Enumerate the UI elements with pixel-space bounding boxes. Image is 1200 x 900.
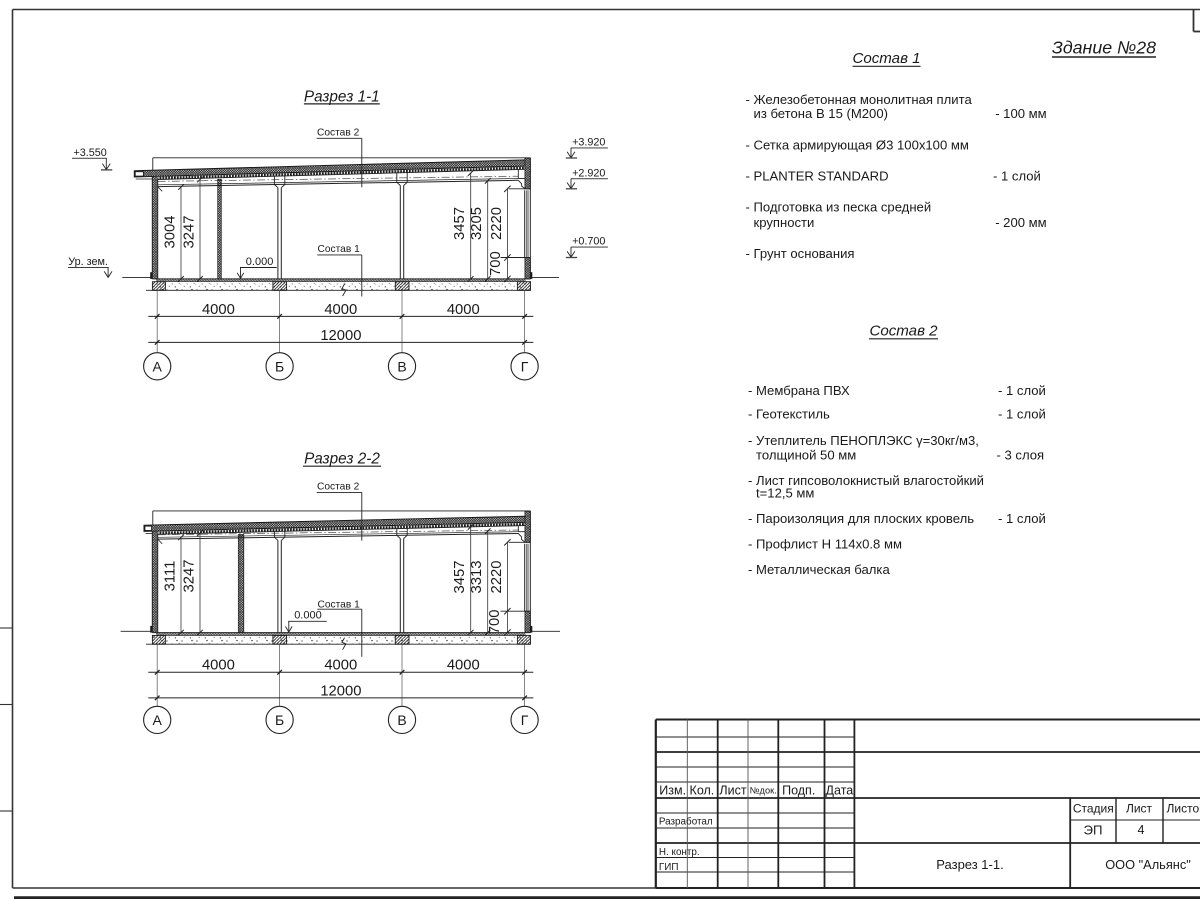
svg-text:+0.700: +0.700 (572, 236, 605, 248)
svg-text:- 1 слой: - 1 слой (998, 383, 1046, 398)
svg-text:- Профлист Н 114х0.8 мм: - Профлист Н 114х0.8 мм (748, 537, 902, 552)
svg-text:крупности: крупности (754, 215, 815, 230)
svg-text:+3.920: +3.920 (572, 137, 605, 149)
svg-text:Листов: Листов (1167, 802, 1200, 816)
svg-text:12000: 12000 (320, 328, 361, 344)
svg-text:Н. контр.: Н. контр. (659, 847, 700, 858)
svg-text:0.000: 0.000 (294, 610, 322, 622)
svg-text:Состав 1: Состав 1 (852, 50, 920, 67)
svg-text:- Сетка армирующая Ø3 100х100: - Сетка армирующая Ø3 100х100 мм (746, 137, 969, 152)
svg-text:- 1 слой: - 1 слой (993, 169, 1041, 184)
svg-text:А: А (153, 358, 163, 374)
svg-text:Изм.: Изм. (659, 783, 686, 797)
svg-text:ООО "Альянс": ООО "Альянс" (1105, 857, 1191, 872)
svg-text:- Геотекстиль: - Геотекстиль (748, 407, 830, 422)
svg-text:2220: 2220 (489, 207, 505, 240)
svg-text:3457: 3457 (452, 207, 468, 240)
svg-text:ЭП: ЭП (1084, 823, 1103, 838)
svg-text:3457: 3457 (452, 561, 468, 594)
svg-text:ГИП: ГИП (659, 862, 679, 873)
svg-text:- 200 мм: - 200 мм (995, 215, 1046, 230)
svg-text:толщиной 50 мм: толщиной 50 мм (756, 447, 856, 462)
svg-text:Состав 2: Состав 2 (317, 481, 360, 492)
svg-text:В: В (397, 358, 406, 374)
svg-text:Разрез 2-2: Разрез 2-2 (304, 451, 380, 468)
svg-text:- Пароизоляция для плоских кро: - Пароизоляция для плоских кровель (748, 511, 974, 526)
svg-text:3004: 3004 (162, 216, 178, 249)
svg-text:700: 700 (488, 251, 504, 276)
svg-text:Разрез 1-1: Разрез 1-1 (304, 88, 380, 105)
svg-text:4: 4 (1138, 823, 1145, 837)
svg-text:Состав 2: Состав 2 (317, 127, 360, 138)
svg-text:Кол.: Кол. (690, 783, 715, 797)
svg-text:+2.920: +2.920 (572, 167, 605, 179)
svg-text:2220: 2220 (489, 561, 505, 594)
svg-text:4000: 4000 (202, 302, 235, 318)
svg-text:t=12,5 мм: t=12,5 мм (756, 486, 814, 501)
svg-text:4000: 4000 (447, 658, 480, 674)
svg-text:№док.: №док. (750, 786, 777, 796)
svg-text:Б: Б (275, 358, 284, 374)
svg-text:3247: 3247 (181, 560, 197, 593)
svg-text:- Металлическая балка: - Металлическая балка (748, 562, 890, 577)
svg-text:Здание №28: Здание №28 (1052, 38, 1156, 58)
svg-text:- Подготовка из песка средней: - Подготовка из песка средней (746, 199, 932, 214)
svg-text:Ур. зем.: Ур. зем. (68, 256, 108, 268)
svg-text:4000: 4000 (447, 302, 480, 318)
svg-text:- Мембрана ПВХ: - Мембрана ПВХ (748, 383, 850, 398)
svg-text:- Утеплитель ПЕНОПЛЭКС γ=30кг/: - Утеплитель ПЕНОПЛЭКС γ=30кг/м3, (748, 433, 979, 448)
svg-text:- Грунт основания: - Грунт основания (746, 246, 855, 261)
svg-text:- 1 слой: - 1 слой (998, 407, 1046, 422)
svg-text:4000: 4000 (324, 302, 357, 318)
svg-text:3313: 3313 (469, 561, 485, 594)
svg-text:- 100 мм: - 100 мм (995, 106, 1046, 121)
svg-text:Г: Г (521, 712, 529, 728)
svg-text:Лист: Лист (719, 783, 746, 797)
svg-text:из бетона В 15 (М200): из бетона В 15 (М200) (754, 106, 889, 121)
svg-text:Разработал: Разработал (659, 817, 713, 828)
svg-text:3247: 3247 (181, 216, 197, 249)
svg-text:- PLANTER STANDARD: - PLANTER STANDARD (746, 169, 889, 184)
svg-text:Состав 2: Состав 2 (869, 323, 938, 340)
svg-text:0.000: 0.000 (246, 256, 274, 268)
svg-text:4000: 4000 (202, 658, 235, 674)
svg-text:700: 700 (487, 610, 503, 635)
svg-text:Подп.: Подп. (782, 783, 815, 797)
svg-text:Г: Г (521, 358, 529, 374)
svg-text:Стадия: Стадия (1073, 802, 1114, 816)
svg-text:3205: 3205 (469, 207, 485, 240)
svg-text:3111: 3111 (162, 561, 178, 592)
svg-text:Дата: Дата (826, 783, 854, 797)
svg-text:Лист: Лист (1126, 802, 1153, 816)
svg-text:- Железобетонная монолитная п: - Железобетонная монолитная плита (746, 92, 973, 107)
svg-text:- 1 слой: - 1 слой (998, 511, 1046, 526)
svg-text:В: В (397, 712, 406, 728)
svg-text:Состав 1: Состав 1 (318, 244, 361, 255)
svg-text:12000: 12000 (320, 683, 361, 699)
svg-text:+3.550: +3.550 (73, 147, 106, 159)
svg-text:- 3 слоя: - 3 слоя (997, 447, 1045, 462)
svg-text:Б: Б (275, 712, 284, 728)
svg-text:Разрез 1-1.: Разрез 1-1. (936, 857, 1003, 872)
svg-text:4000: 4000 (324, 658, 357, 674)
svg-text:А: А (153, 712, 163, 728)
